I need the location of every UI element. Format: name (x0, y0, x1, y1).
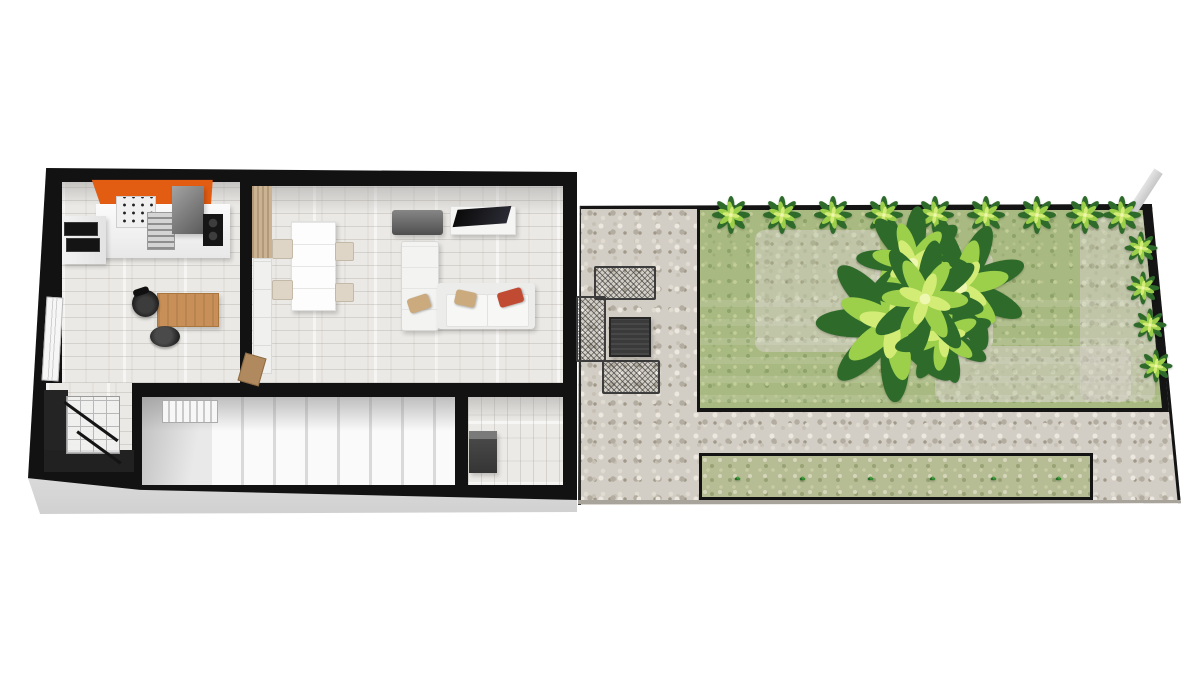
lawn-frame (697, 206, 1169, 412)
planter-bed (702, 456, 1090, 497)
planter-frame (699, 453, 1093, 500)
black-cooktop (203, 214, 223, 246)
garden-bench-bottom (602, 360, 660, 394)
cooktop-left-2 (66, 238, 100, 252)
dish-rack (147, 212, 175, 250)
lawn (700, 210, 1162, 408)
shoe-cabinet (469, 431, 497, 473)
fridge (172, 186, 204, 234)
patio-table (609, 317, 651, 357)
garden-border-bottom (578, 500, 1182, 504)
dining-chair (272, 280, 293, 300)
dining-chair (335, 242, 354, 261)
floorplan-scene (0, 0, 1200, 675)
entry-wall-shade (468, 397, 563, 421)
stool (150, 326, 180, 347)
chaise-longue (401, 241, 439, 331)
wardrobe-panel (252, 186, 272, 258)
cooktop-left-1 (64, 222, 98, 236)
garden-bench-left (576, 296, 606, 362)
dining-chair (272, 239, 293, 259)
garden-bench-top (594, 266, 656, 300)
radiator (162, 400, 218, 423)
gray-sideboard (392, 210, 443, 235)
lawn-mow-streaks (700, 300, 1162, 408)
dining-table (291, 221, 336, 311)
dining-chair (335, 283, 354, 302)
desk (157, 293, 219, 327)
